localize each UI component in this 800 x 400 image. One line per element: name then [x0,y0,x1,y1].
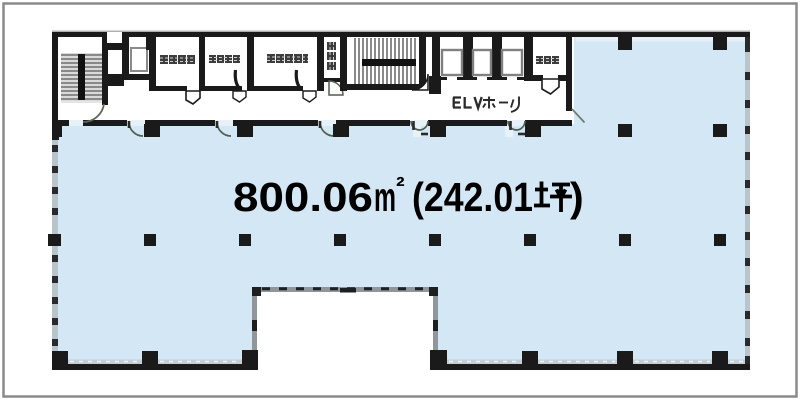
svg-text:(242.01: (242.01 [412,174,533,220]
svg-text:m: m [374,174,396,220]
svg-text:800.06: 800.06 [233,174,373,220]
svg-text:²: ² [396,171,405,201]
svg-text:): ) [570,174,584,220]
